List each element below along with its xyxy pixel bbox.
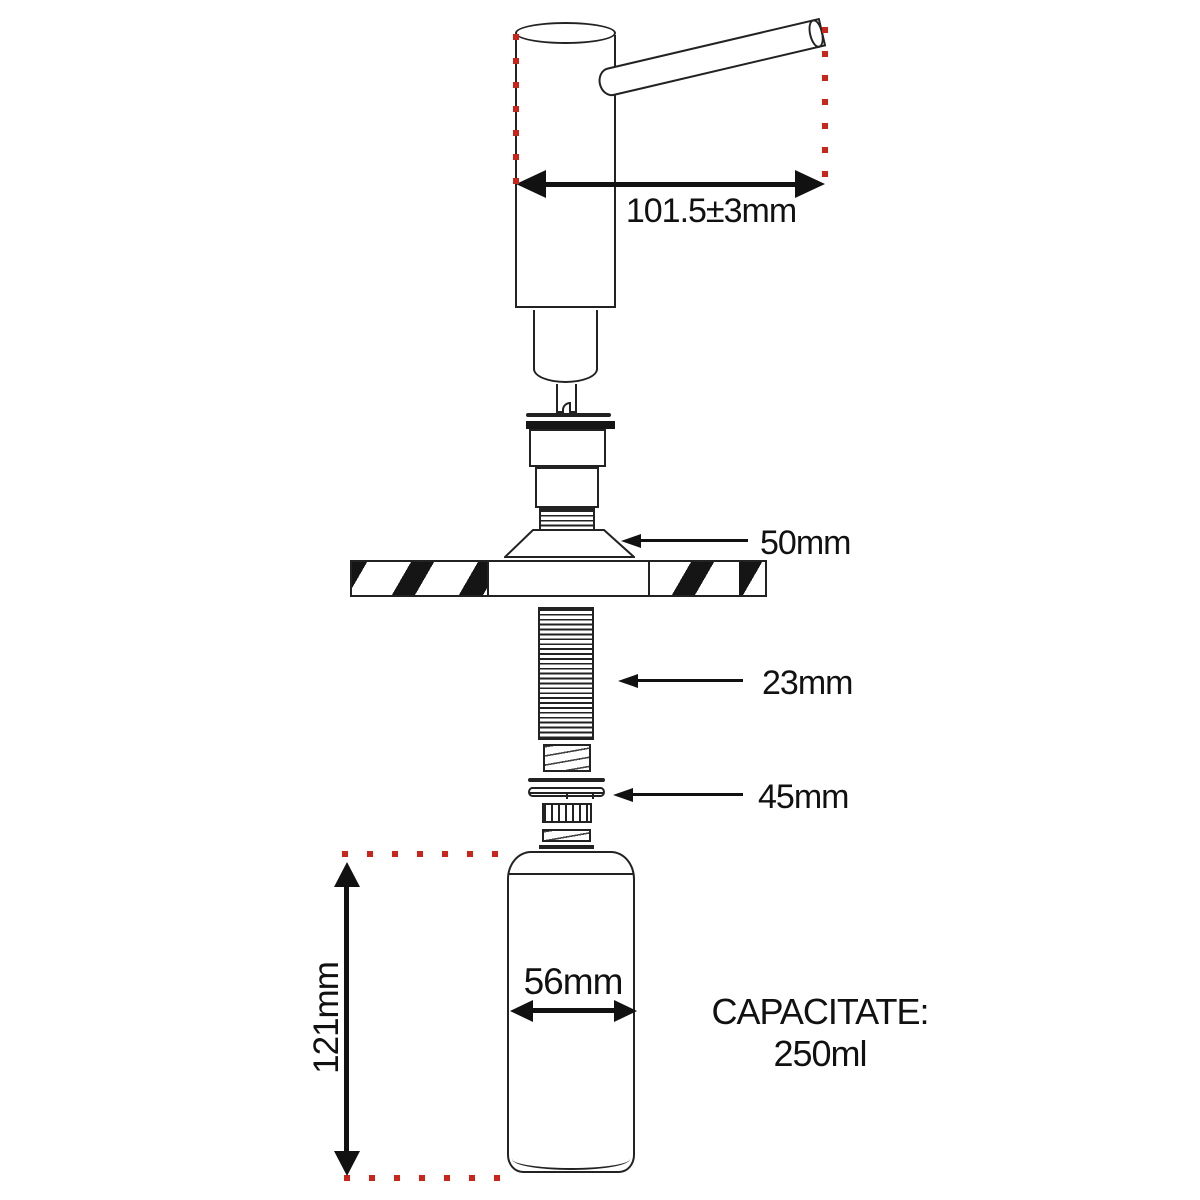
capacity-label: CAPACITATE:	[668, 991, 972, 1033]
label-flange-diameter: 50mm	[760, 524, 850, 563]
guide-dotted-bottom	[344, 1175, 502, 1181]
dim-arrow-thread-head	[618, 674, 638, 688]
label-thread-length: 23mm	[762, 664, 852, 703]
guide-dotted-right	[822, 27, 828, 179]
dim-arrow-spout-reach-head-right	[795, 170, 825, 198]
collar-upper-body	[529, 429, 606, 467]
countertop	[350, 560, 767, 597]
bottle-shoulder-line	[509, 873, 633, 875]
locknut	[528, 787, 605, 797]
capacity-text: CAPACITATE: 250ml	[668, 991, 972, 1076]
countertop-hatch-right	[648, 562, 765, 595]
washer	[528, 778, 605, 782]
diagram-canvas: 101.5±3mm 50mm 23mm 45mm	[0, 0, 1200, 1200]
locknut-seam-v1	[566, 793, 568, 799]
label-bottle-height: 121mm	[307, 950, 343, 1086]
dim-arrow-locknut-line	[631, 793, 743, 796]
shank-thread-cutaway	[543, 744, 591, 772]
dim-arrow-flange-head	[621, 534, 641, 548]
dim-arrow-spout-reach-line	[532, 182, 804, 187]
locknut-seam-v2	[592, 793, 594, 799]
guide-dotted-top	[342, 851, 500, 857]
bottle-neck-ribs	[542, 803, 592, 823]
dim-arrow-bottle-width-head-right	[614, 1000, 637, 1022]
dim-arrow-spout-reach-head-left	[516, 170, 546, 198]
pump-stem	[554, 384, 580, 415]
guide-dotted-left	[513, 34, 519, 186]
label-locknut-diameter: 45mm	[758, 778, 848, 817]
label-bottle-diameter: 56mm	[507, 961, 639, 1003]
shank-thread-tube	[538, 607, 594, 740]
mounting-flange	[504, 528, 635, 559]
bottle-cap-flange	[539, 845, 594, 849]
bottle-bottom-rim	[512, 1156, 630, 1170]
dim-arrow-locknut-head	[613, 788, 633, 802]
dim-arrow-thread-line	[636, 679, 743, 682]
dim-arrow-flange-line	[639, 539, 748, 542]
collar-thread	[539, 508, 595, 530]
dim-arrow-bottle-width-line	[530, 1008, 617, 1013]
collar-lower-body	[535, 467, 599, 508]
pump-head-top-ellipse	[515, 22, 616, 44]
collar-oring	[526, 421, 615, 429]
bottle-cap	[542, 829, 591, 842]
pump-neck	[533, 310, 598, 383]
pump-spout	[596, 18, 827, 99]
countertop-hatch-left	[352, 562, 489, 595]
capacity-value: 250ml	[668, 1033, 972, 1075]
